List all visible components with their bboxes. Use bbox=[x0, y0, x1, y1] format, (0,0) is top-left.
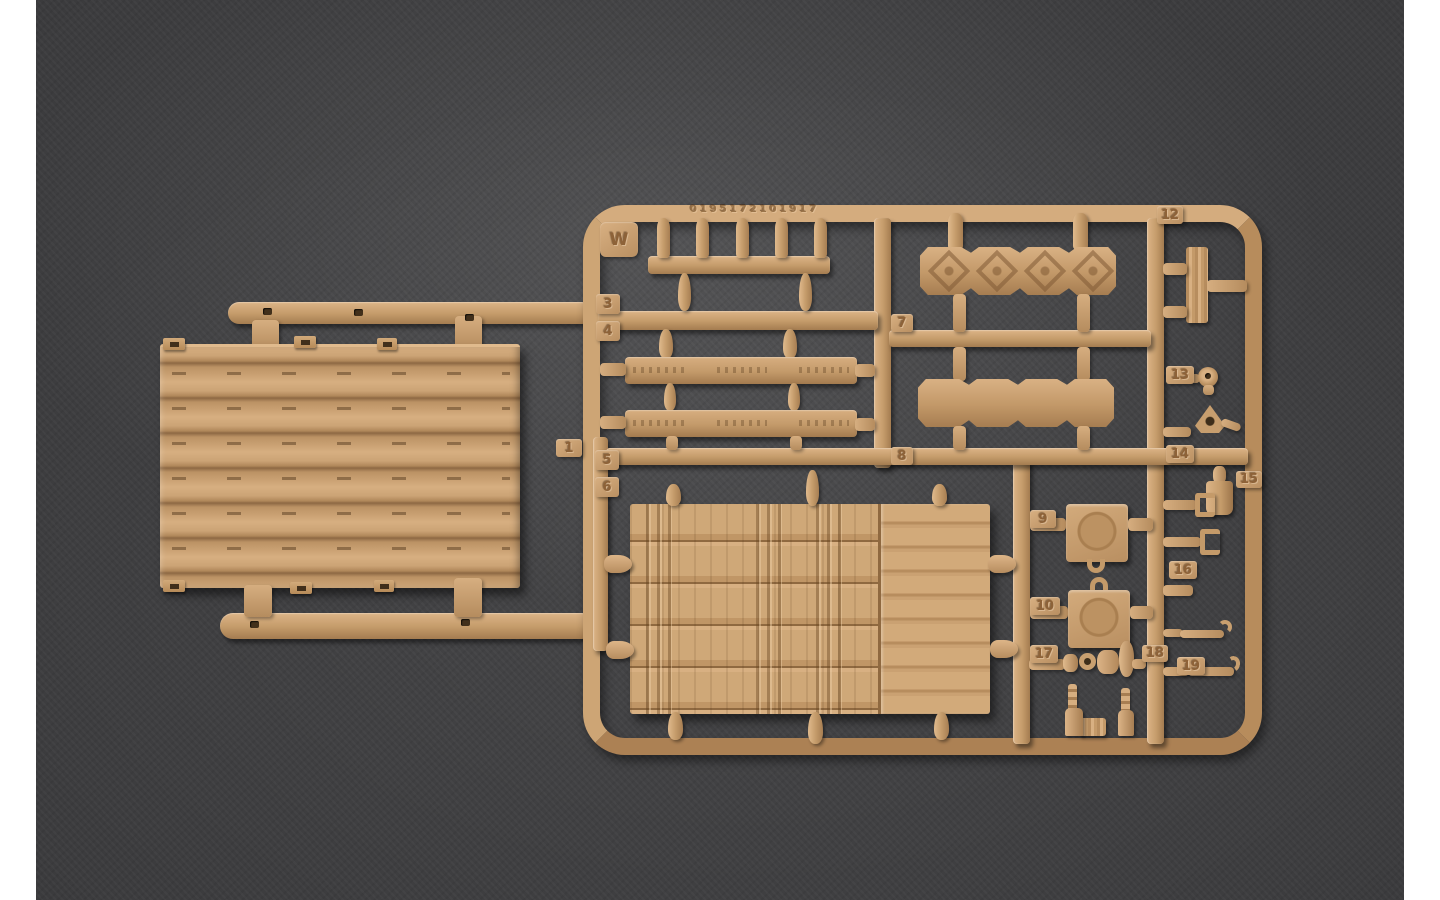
sprue-gate bbox=[988, 555, 1016, 573]
sprue-gate bbox=[808, 712, 823, 744]
sprue-gate bbox=[1163, 585, 1193, 596]
deck-panel-part bbox=[630, 504, 990, 714]
part-number-tag-8: 8 bbox=[891, 447, 913, 465]
panel-rivet-row bbox=[172, 477, 510, 480]
spindle-flange bbox=[1119, 641, 1134, 677]
sprue-letter-tag: W bbox=[600, 222, 638, 257]
part-number-tag-17: 17 bbox=[1030, 645, 1058, 663]
part-number-tag-12: 12 bbox=[1157, 206, 1183, 224]
left-top-runner bbox=[228, 302, 586, 324]
sprue-gate bbox=[953, 426, 966, 450]
left-bottom-runner bbox=[220, 613, 586, 639]
sprue-gate bbox=[668, 712, 683, 740]
panel-clip bbox=[374, 580, 394, 592]
sprue-gate bbox=[666, 436, 678, 450]
panel-clip bbox=[163, 580, 185, 592]
sprue-gate bbox=[1207, 280, 1247, 292]
sprue-gate bbox=[953, 347, 966, 381]
keyhole-hole bbox=[1205, 373, 1211, 379]
panel-rivet-row bbox=[172, 512, 510, 515]
panel-rivet-row bbox=[172, 372, 510, 375]
sprue-gate bbox=[990, 640, 1018, 658]
panel-clip bbox=[163, 338, 185, 350]
sprue-gate bbox=[806, 470, 819, 506]
horizontal-runner bbox=[598, 311, 878, 330]
pin-part bbox=[678, 273, 691, 311]
molded-serial-text: 0195172101917 bbox=[690, 204, 910, 218]
bottle-part bbox=[1118, 710, 1134, 736]
sprue-gate bbox=[948, 213, 963, 250]
sprue-gate bbox=[1077, 347, 1090, 381]
keyhole-tail bbox=[1203, 385, 1214, 395]
hatch-loop-handle bbox=[1090, 577, 1108, 591]
sprue-gate bbox=[1128, 518, 1153, 531]
diamond-emboss bbox=[928, 250, 970, 292]
hatch-square-part bbox=[1066, 504, 1128, 562]
runner-hole bbox=[465, 314, 474, 321]
part-number-tag-9: 9 bbox=[1030, 510, 1056, 528]
long-beam-part bbox=[625, 410, 857, 437]
horizontal-runner bbox=[606, 448, 1248, 465]
sprue-gate bbox=[454, 578, 482, 617]
photo-of-model-kit-sprue: 0195172101917 bbox=[0, 0, 1440, 900]
patterned-wavy-bar-part bbox=[920, 247, 1116, 295]
sprue-gate bbox=[604, 555, 632, 573]
part-number-tag-14: 14 bbox=[1166, 445, 1194, 463]
sprue-gate bbox=[1077, 426, 1090, 450]
pin-part bbox=[814, 218, 827, 258]
hatch-square-part bbox=[1068, 590, 1130, 648]
bracket-clip-part bbox=[1200, 529, 1220, 555]
pin-part bbox=[696, 218, 709, 258]
deck-stud-column bbox=[756, 504, 782, 714]
sprue-gate bbox=[1163, 427, 1191, 437]
deck-stud-column bbox=[816, 504, 842, 714]
photo-margin-right bbox=[1404, 0, 1440, 900]
panel-rivet-row bbox=[172, 442, 510, 445]
part-number-tag-1: 1 bbox=[556, 439, 582, 457]
sprue-gate bbox=[1073, 213, 1088, 250]
part-number-tag-15: 15 bbox=[1236, 471, 1262, 488]
panel-clip bbox=[290, 582, 312, 594]
sprue-gate bbox=[1163, 500, 1197, 510]
part-number-tag-4: 4 bbox=[596, 321, 620, 341]
sprue-gate bbox=[855, 418, 875, 431]
deck-stud-column bbox=[646, 504, 672, 714]
part-number-tag-16: 16 bbox=[1169, 561, 1197, 579]
part-number-tag-18: 18 bbox=[1142, 645, 1168, 662]
panel-rivet-row bbox=[172, 407, 510, 410]
corrugated-roof-panel-part bbox=[160, 344, 520, 588]
part-number-tag-6: 6 bbox=[595, 477, 619, 497]
spindle-spool bbox=[1097, 650, 1119, 674]
spindle-ring bbox=[1079, 653, 1096, 670]
small-bar-part bbox=[648, 256, 830, 274]
diamond-emboss bbox=[1024, 250, 1066, 292]
sprue-gate bbox=[600, 363, 626, 376]
runner-hole bbox=[263, 308, 272, 315]
pin-part bbox=[799, 273, 812, 311]
vertical-runner bbox=[1147, 218, 1164, 744]
part-number-tag-10: 10 bbox=[1030, 597, 1060, 615]
sprue-gate bbox=[953, 294, 966, 332]
sprue-gate bbox=[606, 641, 634, 659]
sprue-gate bbox=[932, 484, 947, 506]
plain-wavy-bar-part bbox=[918, 379, 1114, 427]
diamond-emboss bbox=[1072, 250, 1114, 292]
panel-clip bbox=[377, 338, 397, 350]
diamond-emboss bbox=[976, 250, 1018, 292]
long-beam-part bbox=[625, 357, 857, 384]
rod-hook-tip bbox=[1218, 620, 1232, 634]
sprue-gate bbox=[934, 712, 949, 740]
sprue-gate bbox=[855, 364, 875, 377]
horizontal-runner bbox=[889, 330, 1151, 347]
sprue-gate bbox=[1077, 294, 1090, 332]
sprue-gate bbox=[600, 416, 626, 429]
panel-clip bbox=[294, 336, 316, 348]
sprue-gate bbox=[788, 383, 800, 411]
vertical-runner bbox=[1013, 458, 1030, 744]
sprue-gate bbox=[1163, 537, 1201, 547]
panel-rivet-row bbox=[172, 547, 510, 550]
part-number-tag-7: 7 bbox=[891, 314, 913, 332]
runner-hole bbox=[250, 621, 259, 628]
sprue-gate bbox=[1163, 306, 1187, 318]
sprue-gate bbox=[1130, 606, 1153, 619]
runner-hole bbox=[354, 309, 363, 316]
sprue-gate bbox=[244, 585, 272, 617]
pin-part bbox=[775, 218, 788, 258]
part-number-tag-13: 13 bbox=[1166, 366, 1194, 384]
ridged-bar-part bbox=[1186, 247, 1208, 323]
hooked-rod-part bbox=[1180, 630, 1224, 638]
bracket-clip-part bbox=[1195, 493, 1215, 517]
photo-margin-left bbox=[0, 0, 36, 900]
part-number-tag-3: 3 bbox=[596, 294, 620, 314]
deck-planked-section bbox=[630, 504, 878, 714]
runner-hole bbox=[461, 619, 470, 626]
part-number-tag-19: 19 bbox=[1177, 657, 1205, 675]
bottle-part bbox=[1065, 708, 1083, 736]
sprue-gate bbox=[666, 484, 681, 506]
sprue-gate bbox=[664, 383, 676, 411]
pin-part bbox=[736, 218, 749, 258]
sprue-gate bbox=[1163, 263, 1187, 275]
sprue-gate bbox=[783, 329, 797, 359]
part-number-tag-5: 5 bbox=[595, 450, 619, 470]
deck-smooth-section bbox=[878, 504, 990, 714]
spindle-knob bbox=[1063, 654, 1078, 672]
ribbed-block-part bbox=[1079, 718, 1106, 736]
sprue-gate bbox=[790, 436, 802, 450]
sprue-gate bbox=[659, 329, 673, 359]
pin-part bbox=[657, 218, 670, 258]
